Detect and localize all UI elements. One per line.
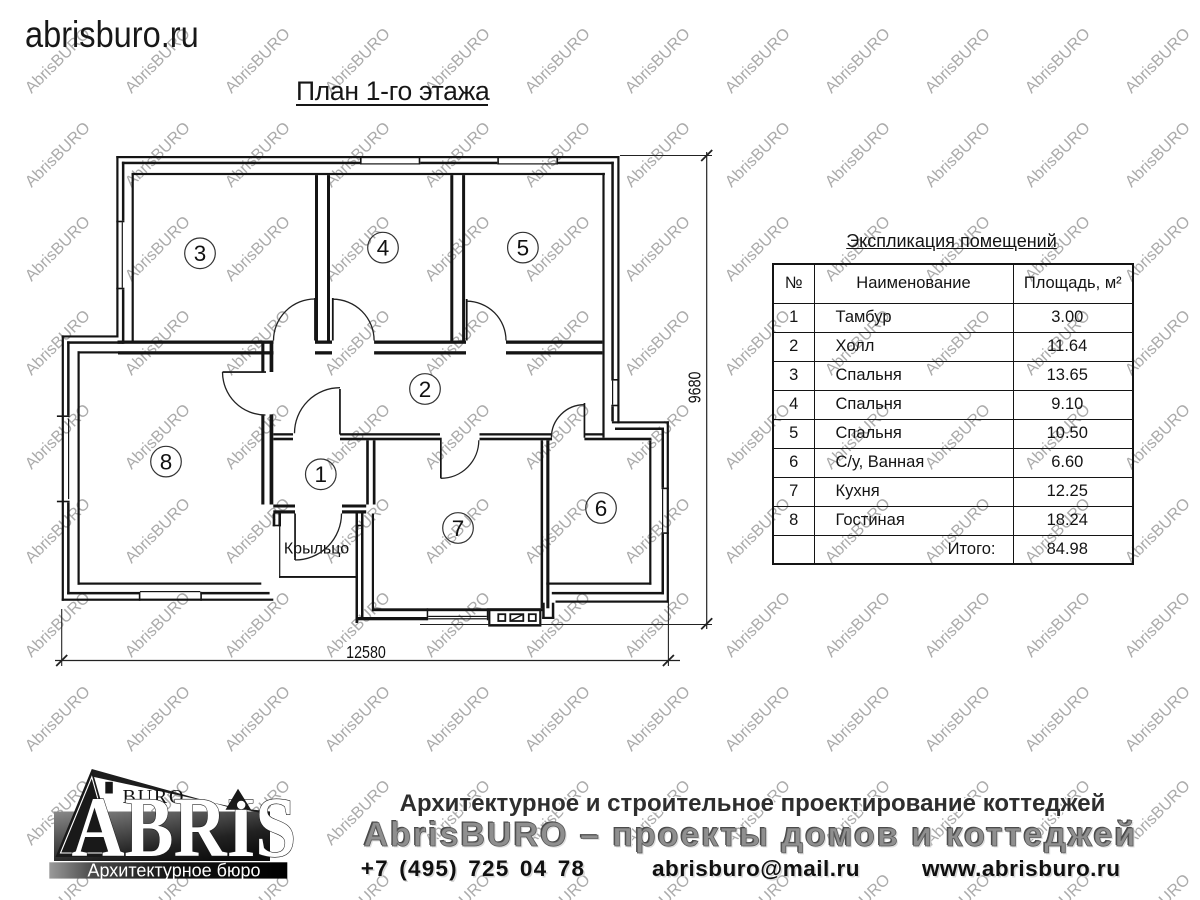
svg-text:AbrisBURO: AbrisBURO bbox=[22, 119, 94, 191]
svg-text:AbrisBURO: AbrisBURO bbox=[222, 401, 294, 473]
svg-text:AbrisBURO: AbrisBURO bbox=[322, 119, 394, 191]
svg-text:AbrisBURO: AbrisBURO bbox=[1122, 25, 1194, 97]
svg-text:AbrisBURO: AbrisBURO bbox=[1022, 589, 1094, 661]
svg-text:AbrisBURO: AbrisBURO bbox=[622, 683, 694, 755]
svg-text:AbrisBURO: AbrisBURO bbox=[622, 307, 694, 379]
svg-text:Архитектурное бюро: Архитектурное бюро bbox=[87, 861, 260, 881]
svg-text:AbrisBURO: AbrisBURO bbox=[1122, 871, 1194, 900]
svg-text:7: 7 bbox=[452, 516, 465, 541]
svg-text:AbrisBURO: AbrisBURO bbox=[522, 213, 594, 285]
svg-text:AbrisBURO: AbrisBURO bbox=[522, 495, 594, 567]
svg-text:AbrisBURO: AbrisBURO bbox=[1122, 683, 1194, 755]
svg-text:AbrisBURO: AbrisBURO bbox=[622, 119, 694, 191]
svg-text:AbrisBURO: AbrisBURO bbox=[122, 495, 194, 567]
svg-text:AbrisBURO: AbrisBURO bbox=[922, 119, 994, 191]
svg-text:6: 6 bbox=[595, 496, 608, 521]
svg-text:AbrisBURO: AbrisBURO bbox=[922, 683, 994, 755]
svg-text:AbrisBURO: AbrisBURO bbox=[422, 213, 494, 285]
svg-text:AbrisBURO: AbrisBURO bbox=[1122, 119, 1194, 191]
svg-text:1: 1 bbox=[315, 462, 328, 487]
svg-text:AbrisBURO: AbrisBURO bbox=[722, 683, 794, 755]
svg-text:AbrisBURO: AbrisBURO bbox=[522, 25, 594, 97]
svg-text:AbrisBURO: AbrisBURO bbox=[122, 683, 194, 755]
svg-text:AbrisBURO: AbrisBURO bbox=[822, 683, 894, 755]
svg-text:12580: 12580 bbox=[346, 644, 386, 662]
svg-text:AbrisBURO: AbrisBURO bbox=[422, 119, 494, 191]
svg-text:5: 5 bbox=[517, 235, 530, 260]
svg-text:AbrisBURO: AbrisBURO bbox=[722, 589, 794, 661]
svg-text:AbrisBURO: AbrisBURO bbox=[322, 683, 394, 755]
svg-text:AbrisBURO: AbrisBURO bbox=[822, 25, 894, 97]
svg-text:AbrisBURO: AbrisBURO bbox=[122, 401, 194, 473]
svg-text:AbrisBURO: AbrisBURO bbox=[422, 401, 494, 473]
svg-text:AbrisBURO: AbrisBURO bbox=[522, 119, 594, 191]
svg-text:AbrisBURO: AbrisBURO bbox=[1022, 119, 1094, 191]
svg-text:AbrisBURO: AbrisBURO bbox=[322, 401, 394, 473]
svg-text:AbrisBURO: AbrisBURO bbox=[22, 401, 94, 473]
svg-text:AbrisBURO: AbrisBURO bbox=[522, 683, 594, 755]
svg-text:9680: 9680 bbox=[686, 371, 704, 403]
svg-text:AbrisBURO: AbrisBURO bbox=[222, 683, 294, 755]
svg-text:3: 3 bbox=[194, 241, 207, 266]
svg-text:AbrisBURO: AbrisBURO bbox=[222, 25, 294, 97]
svg-text:AbrisBURO: AbrisBURO bbox=[22, 683, 94, 755]
svg-text:AbrisBURO: AbrisBURO bbox=[922, 25, 994, 97]
svg-text:2: 2 bbox=[419, 377, 432, 402]
svg-text:8: 8 bbox=[160, 449, 173, 474]
svg-text:AbrisBURO: AbrisBURO bbox=[422, 683, 494, 755]
svg-text:AbrisBURO: AbrisBURO bbox=[22, 213, 94, 285]
svg-text:AbrisBURO: AbrisBURO bbox=[1122, 589, 1194, 661]
svg-text:AbrisBURO: AbrisBURO bbox=[722, 25, 794, 97]
svg-text:AbrisBURO: AbrisBURO bbox=[822, 119, 894, 191]
svg-text:AbrisBURO: AbrisBURO bbox=[622, 213, 694, 285]
svg-text:AbrisBURO: AbrisBURO bbox=[722, 119, 794, 191]
svg-text:AbrisBURO: AbrisBURO bbox=[1022, 25, 1094, 97]
svg-text:AbrisBURO: AbrisBURO bbox=[622, 495, 694, 567]
svg-text:AbrisBURO: AbrisBURO bbox=[622, 401, 694, 473]
svg-text:AbrisBURO: AbrisBURO bbox=[222, 119, 294, 191]
svg-text:4: 4 bbox=[377, 235, 390, 260]
svg-text:AbrisBURO: AbrisBURO bbox=[622, 25, 694, 97]
svg-text:AbrisBURO: AbrisBURO bbox=[822, 589, 894, 661]
svg-text:AbrisBURO: AbrisBURO bbox=[522, 401, 594, 473]
svg-text:AbrisBURO: AbrisBURO bbox=[1022, 683, 1094, 755]
svg-text:AbrisBURO: AbrisBURO bbox=[222, 213, 294, 285]
svg-text:AbrisBURO: AbrisBURO bbox=[22, 495, 94, 567]
svg-text:AbrisBURO: AbrisBURO bbox=[922, 589, 994, 661]
